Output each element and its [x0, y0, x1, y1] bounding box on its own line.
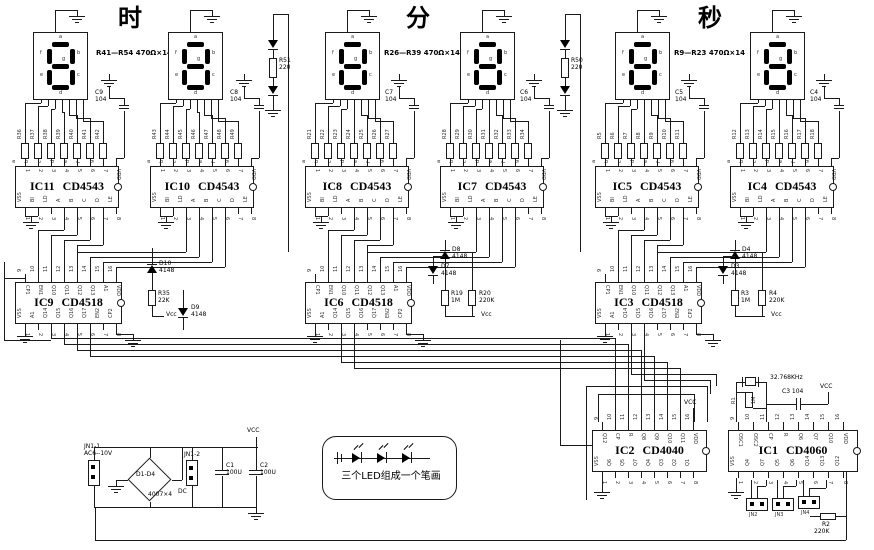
pin-stub: [813, 472, 814, 478]
wire: [160, 208, 161, 216]
pin-stub: [657, 274, 658, 282]
segment-letter: d: [351, 91, 354, 96]
segment-pin-label: a: [727, 160, 732, 163]
resistor: [640, 143, 648, 159]
pin-label: LD: [624, 195, 629, 202]
crystal-label: 32.768KHz: [770, 375, 803, 381]
capacitor-icon: [409, 108, 419, 109]
cap-name: C3 104: [782, 389, 803, 395]
wire: [64, 330, 65, 344]
pin-label: Q13: [669, 285, 674, 295]
wire: [549, 111, 550, 158]
pin-number: 1: [449, 217, 454, 220]
segment-bar: [47, 70, 52, 85]
segment-letter: d: [776, 91, 779, 96]
pin-label: A1: [682, 285, 687, 292]
pin-label: 2: [172, 169, 177, 172]
pin-number: 5: [653, 481, 658, 484]
diode-icon: [147, 265, 157, 273]
segment-bar: [362, 49, 367, 64]
wire: [160, 103, 176, 104]
pin-number: 8: [250, 217, 255, 220]
ground-icon: [600, 339, 610, 340]
pin-number: 5: [366, 333, 371, 336]
pin-label: CP2: [399, 308, 404, 318]
wire: [605, 103, 606, 143]
pin-label: EN1: [617, 285, 622, 295]
pin-stub: [768, 422, 769, 430]
pin-stub: [740, 158, 741, 166]
pin-stub: [38, 324, 39, 330]
resistor-label: R29: [456, 129, 461, 139]
wire: [510, 100, 511, 121]
resistor: [758, 290, 766, 306]
pin-label: VDD: [842, 433, 847, 444]
capacitor-icon: [119, 105, 129, 106]
section-title: 分: [406, 6, 430, 30]
pin-stub: [683, 158, 684, 166]
pin-label: Q14: [806, 456, 811, 466]
wire: [406, 267, 407, 274]
pin-label: VSS: [18, 192, 23, 202]
annotation: R26—R39 470Ω×14: [384, 50, 460, 57]
wire: [173, 106, 183, 107]
pin-number: 14: [806, 414, 811, 420]
pin-label: A: [57, 199, 62, 202]
capacitor-icon: [254, 105, 264, 106]
wire: [515, 208, 516, 267]
pin-label: A: [482, 199, 487, 202]
wire: [740, 103, 741, 143]
segment-bar: [187, 64, 204, 69]
pin-stub: [25, 274, 26, 282]
wire: [510, 121, 528, 122]
colon-resistor-value: 220: [571, 65, 582, 71]
wire: [77, 350, 641, 351]
wire: [631, 235, 632, 274]
cap-value: 104: [675, 97, 686, 103]
segment-bar: [474, 49, 479, 64]
wire: [95, 507, 96, 540]
pin-label: VDD: [405, 169, 410, 180]
wire: [637, 10, 659, 11]
wire: [186, 109, 187, 143]
wire: [810, 516, 820, 517]
ground-icon: [499, 19, 509, 20]
pin-stub: [628, 472, 629, 478]
pin-number: 10: [321, 266, 326, 272]
wire: [368, 100, 369, 118]
segment-bar: [205, 49, 210, 64]
ground-icon: [600, 498, 604, 499]
wire: [445, 316, 475, 317]
cap-value: 104: [385, 97, 396, 103]
ground-icon: [734, 498, 738, 499]
ground-icon: [609, 228, 613, 229]
pin-label: A: [637, 199, 642, 202]
wire: [288, 14, 289, 252]
wire: [393, 262, 394, 274]
pin-stub: [341, 158, 342, 166]
diode-icon: [428, 266, 438, 274]
resistor-label: R49: [231, 129, 236, 139]
segment-bar: [634, 64, 651, 69]
pin-stub: [77, 158, 78, 166]
ic-part: CD4543: [485, 179, 526, 194]
wire: [777, 480, 778, 498]
resistor-label: R46: [192, 129, 197, 139]
pin-stub: [753, 472, 754, 478]
resistor: [99, 143, 107, 159]
ic-notch-icon: [702, 447, 710, 455]
wire: [683, 121, 684, 143]
ground-icon: [23, 342, 27, 343]
pin-stub: [51, 208, 52, 214]
wire: [637, 100, 638, 109]
wire: [38, 106, 39, 143]
wire: [173, 106, 174, 143]
pin-stub: [768, 472, 769, 478]
ground-icon: [207, 19, 217, 20]
ground-icon: [158, 222, 174, 223]
connector-pin: [91, 475, 95, 479]
resistor-label: R18: [811, 129, 816, 139]
wire: [354, 100, 355, 112]
wire: [192, 486, 193, 507]
wire: [489, 100, 490, 112]
pin-label: CP1: [604, 285, 609, 295]
ground-icon: [415, 340, 431, 341]
pin-label: Q16: [360, 308, 365, 318]
ac-voltage-label: AC6--10V: [84, 451, 112, 457]
pin-number: 2: [462, 217, 467, 220]
resistor: [511, 143, 519, 159]
bridge-part-label: 4007×4: [148, 492, 172, 498]
wire: [803, 480, 804, 496]
resistor: [208, 143, 216, 159]
resistor-label: R13: [746, 129, 751, 139]
wire: [602, 478, 603, 486]
label: 4148: [159, 268, 174, 274]
segment-pin-label: a: [592, 160, 597, 163]
ground-icon: [210, 22, 214, 23]
segment-bar: [479, 42, 496, 47]
ic-name: IC1: [759, 443, 778, 458]
pin-number: 2: [172, 217, 177, 220]
resistor: [788, 143, 796, 159]
wire: [218, 100, 219, 121]
wire: [94, 447, 95, 460]
pin-stub: [828, 472, 829, 478]
crystal: [745, 377, 756, 386]
wire: [445, 240, 446, 250]
wire: [541, 158, 549, 159]
ic-name: IC2: [615, 443, 634, 458]
pin-number: 12: [634, 414, 639, 420]
pin-number: 6: [812, 481, 817, 484]
ground-icon: [529, 83, 539, 84]
pin-stub: [103, 158, 104, 166]
pin-label: 5: [791, 169, 796, 172]
wire: [689, 86, 690, 98]
pin-label: VDD: [115, 169, 120, 180]
wire: [328, 230, 354, 231]
pin-stub: [315, 274, 316, 282]
pin-label: C: [83, 199, 88, 203]
wire: [109, 98, 124, 99]
connector-pin: [750, 502, 754, 506]
resistor: [614, 143, 622, 159]
resistor: [324, 143, 332, 159]
pin-stub: [354, 158, 355, 166]
wire: [399, 86, 400, 98]
resistor-label: R5: [598, 132, 603, 139]
wire: [199, 208, 200, 257]
resistor-label: R15: [772, 129, 777, 139]
pin-stub: [696, 158, 697, 166]
ic-part: CD4543: [198, 179, 239, 194]
wire: [758, 377, 759, 387]
wire: [273, 78, 274, 86]
wire: [328, 106, 329, 143]
pin-label: VSS: [731, 456, 736, 466]
pin-stub: [51, 158, 52, 166]
ic-title: IC7CD4543: [446, 179, 538, 194]
wire: [259, 98, 260, 105]
segment-letter: f: [40, 51, 42, 56]
pin-stub: [380, 158, 381, 166]
pin-label: Q17: [663, 308, 668, 318]
pin-stub: [367, 274, 368, 282]
pin-label: LE: [244, 196, 249, 202]
wire: [64, 112, 65, 143]
wire: [116, 267, 117, 274]
wire: [723, 276, 724, 284]
wire: [751, 480, 752, 498]
segment-letter: f: [622, 51, 624, 56]
led-icon: [352, 453, 360, 463]
pin-stub: [615, 422, 616, 430]
wire: [173, 208, 174, 216]
segment-bar: [47, 49, 52, 64]
segment-bar: [182, 49, 187, 64]
wire: [64, 208, 65, 230]
wire: [818, 121, 819, 143]
wire: [25, 103, 26, 143]
section-title: 时: [118, 6, 142, 30]
vcc-label: VCC: [820, 384, 832, 390]
pin-number: 14: [83, 266, 88, 272]
pin-stub: [753, 158, 754, 166]
wire: [657, 115, 658, 143]
pin-stub: [489, 158, 490, 166]
ground-icon: [164, 228, 168, 229]
wire: [328, 230, 329, 274]
ic-title: IC5CD4543: [601, 179, 693, 194]
wire: [328, 208, 329, 216]
wire: [192, 447, 193, 460]
pin-label: Q12: [656, 285, 661, 295]
wire: [796, 480, 797, 486]
segment-letter: b: [212, 51, 215, 56]
segment-letter: d: [59, 91, 62, 96]
pin-label: Q8: [640, 433, 645, 440]
wire: [489, 208, 490, 257]
pin-number: 11: [624, 266, 629, 272]
wire: [658, 118, 670, 119]
pin-stub: [515, 158, 516, 166]
wire: [273, 50, 274, 58]
pin-label: Q6: [797, 433, 802, 440]
pin-label: VSS: [308, 192, 313, 202]
ic-notch-icon: [697, 299, 705, 307]
segment-bar: [205, 70, 210, 85]
wire: [222, 476, 223, 507]
pin-label: EN1: [37, 285, 42, 295]
ground-icon: [594, 492, 610, 493]
wire: [565, 14, 566, 40]
pin-label: VDD: [405, 285, 410, 296]
resistor-label: R6: [611, 132, 616, 139]
connector-label: JN3: [775, 513, 783, 518]
pin-label: VDD: [250, 169, 255, 180]
segment-letter: g: [489, 57, 492, 62]
ground-icon: [789, 19, 799, 20]
pin-label: LD: [179, 195, 184, 202]
segment-letter: a: [776, 35, 779, 40]
wire: [824, 86, 825, 98]
wire: [361, 100, 362, 115]
wire: [615, 338, 616, 422]
resistor-label: R47: [205, 129, 210, 139]
segment-letter: f: [467, 51, 469, 56]
wire: [380, 257, 381, 274]
wire: [670, 208, 671, 240]
wire: [618, 106, 619, 143]
wire: [796, 398, 797, 410]
ground-icon: [251, 516, 261, 517]
wire: [51, 235, 52, 274]
wire: [753, 408, 766, 409]
wire: [186, 208, 187, 252]
segment-bar: [70, 70, 75, 85]
diode-icon: [560, 86, 570, 94]
segment-letter: c: [659, 73, 662, 78]
pin-label: A1: [102, 285, 107, 292]
segment-letter: b: [77, 51, 80, 56]
segment-letter: a: [194, 35, 197, 40]
ic-notch-icon: [117, 299, 125, 307]
resistor-label: R22: [321, 129, 326, 139]
pin-stub: [328, 158, 329, 166]
pin-number: 7: [827, 481, 832, 484]
wire: [380, 208, 381, 240]
pin-stub: [406, 208, 407, 214]
wire: [665, 121, 683, 122]
pin-label: Q7: [634, 459, 639, 466]
pin-number: 9: [595, 417, 600, 420]
pin-stub: [805, 158, 806, 166]
wire: [48, 100, 49, 106]
ground-icon: [792, 22, 796, 23]
wire: [354, 240, 355, 274]
pin-number: 2: [752, 217, 757, 220]
pin-label: CP2: [689, 308, 694, 318]
wire: [51, 338, 615, 339]
resistor: [182, 143, 190, 159]
resistor: [485, 143, 493, 159]
resistor: [21, 143, 29, 159]
segment-bar: [339, 49, 344, 64]
wire: [251, 158, 259, 159]
ground-icon: [108, 486, 124, 487]
ground-icon: [684, 83, 694, 84]
wire: [124, 98, 125, 105]
pin-label: 3: [50, 169, 55, 172]
pin-number: 12: [57, 266, 62, 272]
wire: [176, 100, 177, 103]
resistor-label: R33: [508, 129, 513, 139]
connector-pin: [776, 502, 780, 506]
resistor-label: R39: [57, 129, 62, 139]
pin-stub: [618, 324, 619, 330]
ic-title: IC2CD4040: [598, 443, 701, 458]
resistor-label: R43: [153, 129, 158, 139]
wire: [580, 14, 581, 252]
resistor: [736, 143, 744, 159]
pin-label: LD: [44, 195, 49, 202]
ground-icon: [705, 340, 721, 341]
cap-value: 104: [810, 97, 821, 103]
segment-bar: [497, 70, 502, 85]
connector-pin: [786, 502, 790, 506]
wire: [753, 106, 754, 143]
wire: [549, 98, 550, 105]
resistor: [86, 143, 94, 159]
pin-stub: [631, 208, 632, 214]
wire: [839, 111, 840, 158]
pin-label: R: [627, 433, 632, 436]
resistor: [468, 290, 476, 306]
connector-pin: [189, 476, 193, 480]
pin-number: 8: [540, 217, 545, 220]
ground-icon: [254, 519, 258, 520]
pin-number: 2: [752, 481, 757, 484]
pin-number: 14: [373, 266, 378, 272]
pin-label: Q14: [334, 308, 339, 318]
pin-label: 1: [24, 169, 29, 172]
ic-title: IC11CD4543: [21, 179, 113, 194]
pin-label: 4: [643, 169, 648, 172]
pin-label: Q11: [679, 433, 684, 443]
pin-number: 2: [37, 217, 42, 220]
ground-icon: [111, 489, 121, 490]
pin-number: 8: [830, 217, 835, 220]
wire: [367, 245, 368, 274]
pin-label: Q16: [650, 308, 655, 318]
wire: [786, 100, 787, 115]
pin-number: 2: [614, 481, 619, 484]
pin-number: 7: [237, 217, 242, 220]
pin-stub: [51, 274, 52, 282]
wire: [644, 380, 710, 381]
pin-label: 4: [353, 169, 358, 172]
wire: [472, 252, 473, 290]
wire: [623, 100, 624, 103]
wire: [723, 256, 724, 266]
wire: [399, 98, 414, 99]
wire: [800, 121, 818, 122]
